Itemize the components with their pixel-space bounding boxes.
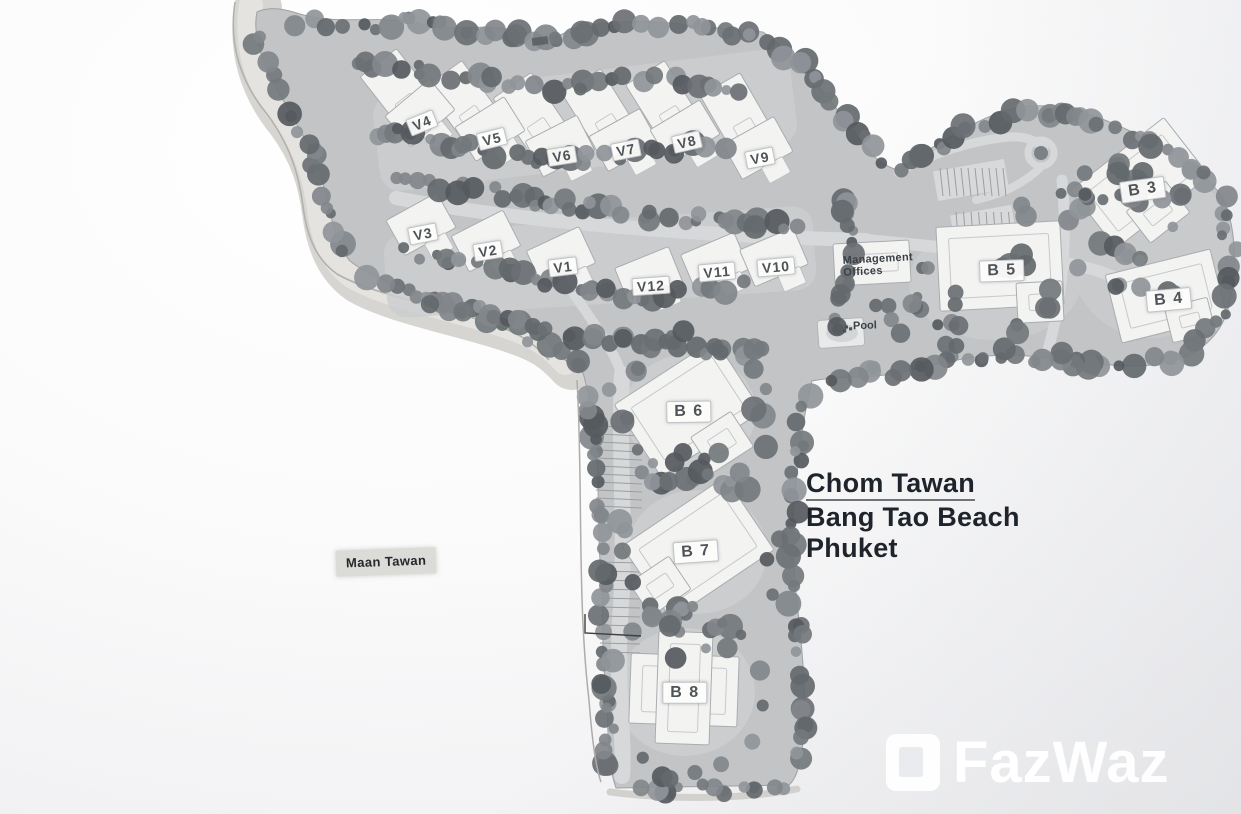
plot-label-v1: V1 xyxy=(547,256,578,278)
plot-label-v10: V10 xyxy=(756,256,795,277)
pool-label-text: Pool xyxy=(853,319,877,332)
site-plan-map xyxy=(0,0,1241,814)
plot-label-b5: B 5 xyxy=(979,259,1025,283)
title-line-2: Bang Tao Beach xyxy=(806,502,1020,532)
plot-label-b6: B 6 xyxy=(666,400,712,423)
pool-icon xyxy=(845,325,848,328)
neighbor-project-label: Maan Tawan xyxy=(336,547,437,576)
project-title: Chom Tawan Bang Tao Beach Phuket xyxy=(806,468,1020,564)
title-line-1: Chom Tawan xyxy=(806,468,1020,501)
neighbor-project-text: Maan Tawan xyxy=(346,553,427,571)
title-line-3: Phuket xyxy=(806,533,1020,563)
site-plan-page: V4V5V6V7V8V9V3V2V1V12V11V10B 3B 4B 5B 6B… xyxy=(0,0,1241,814)
plot-label-b7: B 7 xyxy=(673,539,720,565)
plot-label-v12: V12 xyxy=(631,276,670,297)
plot-label-v11: V11 xyxy=(698,261,737,282)
plot-label-b8: B 8 xyxy=(662,682,707,704)
pool-label: Pool xyxy=(845,319,877,332)
plot-label-b4: B 4 xyxy=(1145,287,1192,313)
management-offices-label: Management Offices xyxy=(842,251,913,279)
